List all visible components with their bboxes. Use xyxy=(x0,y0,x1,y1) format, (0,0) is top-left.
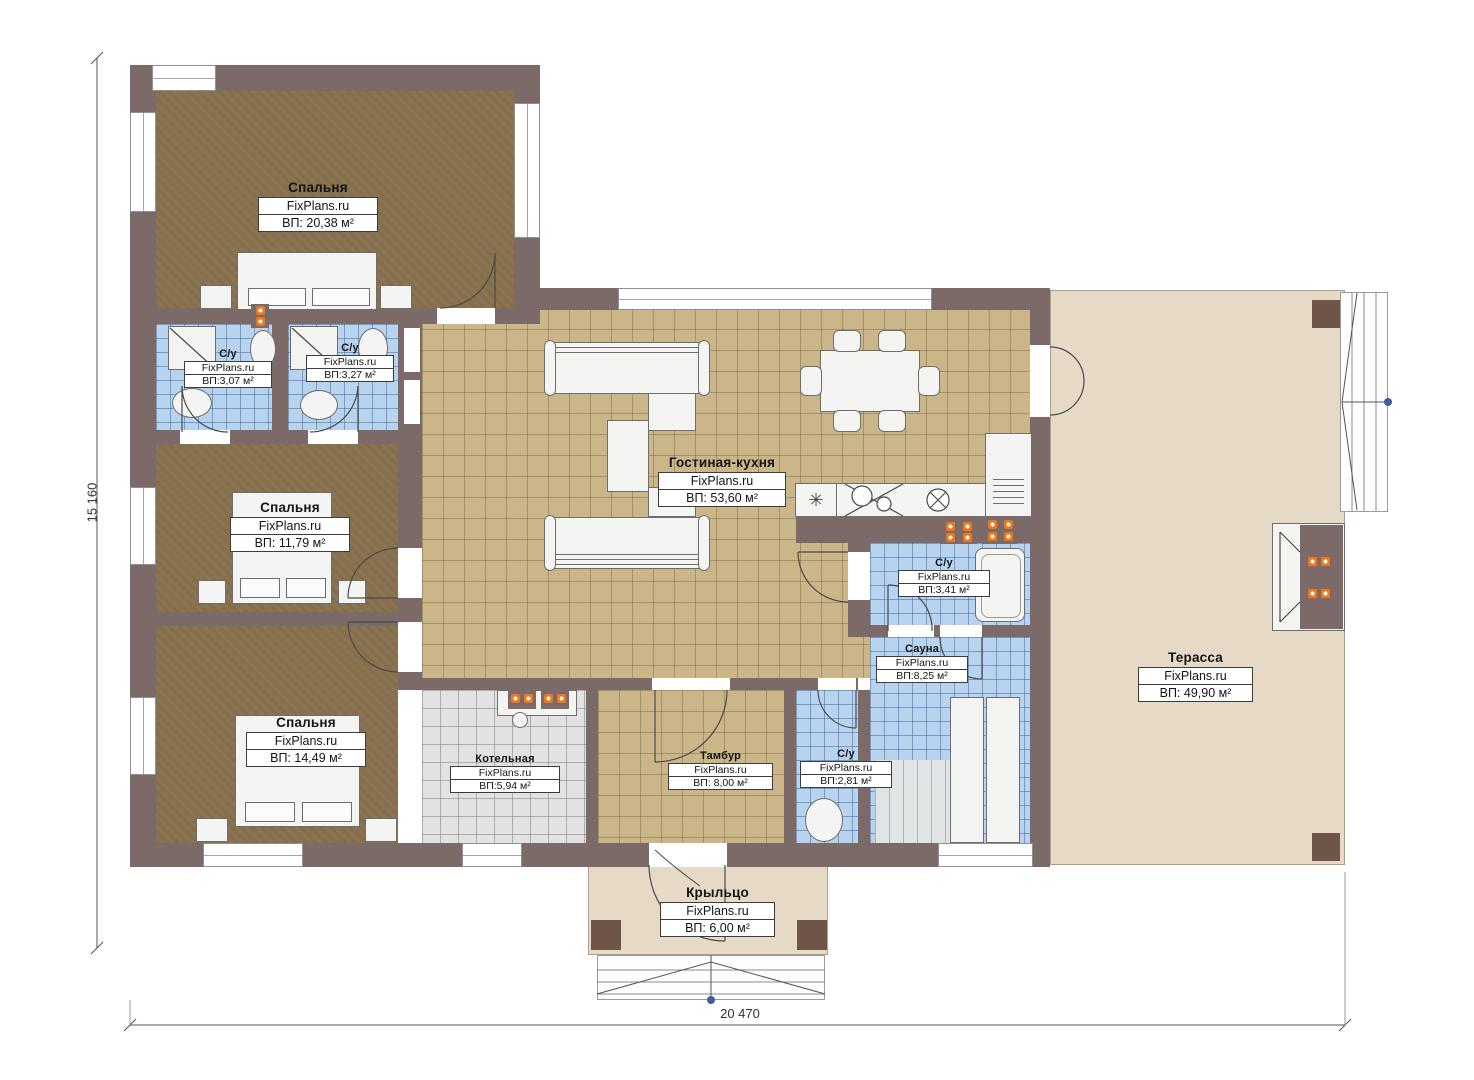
window xyxy=(203,843,303,867)
window xyxy=(130,487,156,565)
brand: FixPlans.ru xyxy=(247,733,365,749)
brand: FixPlans.ru xyxy=(659,473,785,489)
room-name: С/у xyxy=(184,348,272,360)
toilet xyxy=(805,798,843,842)
chair xyxy=(833,410,861,432)
floor-plan: ✳ xyxy=(0,0,1474,1080)
dimension-label-height: 15 160 xyxy=(85,473,100,533)
window xyxy=(152,65,216,91)
fridge xyxy=(985,433,1032,517)
nightstand xyxy=(198,580,226,604)
wall xyxy=(422,678,802,690)
door-opening xyxy=(398,548,422,598)
room-label-bath-3: С/у FixPlans.ru ВП:3,41 м² xyxy=(898,557,990,597)
room-label-bedroom-3: Спальня FixPlans.ru ВП: 14,49 м² xyxy=(246,715,366,767)
room-area: ВП: 14,49 м² xyxy=(247,749,365,766)
bbq-burners xyxy=(1305,584,1333,602)
sofa-chaise xyxy=(648,393,696,431)
window xyxy=(130,697,156,775)
brand: FixPlans.ru xyxy=(899,571,989,583)
room-label-bath-1: С/у FixPlans.ru ВП:3,07 м² xyxy=(184,348,272,388)
pillow xyxy=(245,802,295,822)
room-label-boiler: Котельная FixPlans.ru ВП:5,94 м² xyxy=(450,753,560,793)
room-name: Сауна xyxy=(876,643,968,655)
wall xyxy=(586,690,598,843)
pillow xyxy=(302,802,352,822)
sofa-arm xyxy=(544,515,556,571)
door-opening xyxy=(180,430,230,444)
door-opening-front xyxy=(649,843,727,867)
door-opening xyxy=(848,552,870,600)
room-name: Спальня xyxy=(230,500,350,515)
porch-post xyxy=(591,920,621,950)
room-area: ВП: 6,00 м² xyxy=(661,919,774,936)
room-label-bedroom-1: Спальня FixPlans.ru ВП: 20,38 м² xyxy=(258,180,378,232)
room-label-porch: Крыльцо FixPlans.ru ВП: 6,00 м² xyxy=(660,885,775,937)
radiator xyxy=(251,304,269,328)
room-label-bath-2: С/у FixPlans.ru ВП:3,27 м² xyxy=(306,342,394,382)
door-opening xyxy=(888,625,934,637)
pillow xyxy=(240,578,280,598)
room-name: С/у xyxy=(898,557,990,569)
nightstand xyxy=(200,285,232,309)
room-area: ВП:3,41 м² xyxy=(899,583,989,596)
window xyxy=(938,843,1033,867)
room-label-bath-4: С/у FixPlans.ru ВП:2,81 м² xyxy=(800,748,892,788)
brand: FixPlans.ru xyxy=(801,762,891,774)
room-area: ВП: 8,00 м² xyxy=(669,776,772,789)
window xyxy=(130,112,156,212)
sofa-arm xyxy=(544,340,556,396)
room-name: С/у xyxy=(800,748,892,760)
room-area: ВП:3,27 м² xyxy=(307,368,393,381)
room-label-living-kitchen: Гостиная-кухня FixPlans.ru ВП: 53,60 м² xyxy=(658,455,786,507)
porch-post xyxy=(797,920,827,950)
window xyxy=(618,288,932,310)
terrace-post xyxy=(1312,300,1340,328)
nightstand xyxy=(196,818,228,842)
wall xyxy=(784,690,796,843)
room-name: Гостиная-кухня xyxy=(658,455,786,470)
boiler-gauge xyxy=(512,712,528,728)
vent-symbol: ✳ xyxy=(808,490,823,511)
door-opening xyxy=(398,622,422,672)
nightstand xyxy=(365,818,397,842)
brand: FixPlans.ru xyxy=(259,198,377,214)
room-name: С/у xyxy=(306,342,394,354)
brand: FixPlans.ru xyxy=(451,767,559,779)
chair xyxy=(833,330,861,352)
coffee-table xyxy=(607,420,649,492)
room-label-bedroom-2: Спальня FixPlans.ru ВП: 11,79 м² xyxy=(230,500,350,552)
brand: FixPlans.ru xyxy=(231,518,349,534)
sofa-arm xyxy=(698,340,710,396)
brand: FixPlans.ru xyxy=(877,657,967,669)
wall xyxy=(848,625,1030,637)
cooktop-vent-icon: ✳ xyxy=(795,483,837,517)
chair xyxy=(878,410,906,432)
window xyxy=(514,103,540,238)
room-area: ВП: 11,79 м² xyxy=(231,534,349,551)
radiator xyxy=(941,520,977,544)
dining-table xyxy=(820,350,920,412)
room-name: Тамбур xyxy=(668,750,773,762)
sofa-backrest xyxy=(552,342,702,357)
room-label-sauna: Сауна FixPlans.ru ВП:8,25 м² xyxy=(876,643,968,683)
sofa-arm xyxy=(698,515,710,571)
radiator xyxy=(983,517,1017,544)
room-label-vestibule: Тамбур FixPlans.ru ВП: 8,00 м² xyxy=(668,750,773,790)
room-area: ВП:2,81 м² xyxy=(801,774,891,787)
room-area: ВП:3,07 м² xyxy=(185,374,271,387)
boiler-burners xyxy=(508,687,536,709)
chair xyxy=(918,366,940,396)
door-opening-terrace xyxy=(1030,345,1050,417)
brand: FixPlans.ru xyxy=(1139,668,1252,684)
wall-niche xyxy=(404,328,420,372)
terrace-post xyxy=(1312,833,1340,861)
chair xyxy=(800,366,822,396)
room-area: ВП: 49,90 м² xyxy=(1139,684,1252,701)
bbq-burners xyxy=(1305,552,1333,570)
room-name: Крыльцо xyxy=(660,885,775,900)
brand: FixPlans.ru xyxy=(661,903,774,919)
room-name: Котельная xyxy=(450,753,560,765)
terrace-stairs xyxy=(1340,292,1388,512)
window xyxy=(462,843,522,867)
toilet xyxy=(300,390,338,420)
brand: FixPlans.ru xyxy=(185,362,271,374)
room-name: Спальня xyxy=(258,180,378,195)
sauna-bench xyxy=(986,697,1020,843)
room-name: Терасса xyxy=(1138,650,1253,665)
room-label-terrace: Терасса FixPlans.ru ВП: 49,90 м² xyxy=(1138,650,1253,702)
brand: FixPlans.ru xyxy=(669,764,772,776)
toilet xyxy=(172,388,212,418)
pillow xyxy=(312,288,370,306)
sofa-backrest xyxy=(552,554,702,569)
nightstand xyxy=(380,285,412,309)
door-opening xyxy=(437,308,495,324)
room-name: Спальня xyxy=(246,715,366,730)
fridge-vent-slats xyxy=(993,479,1025,508)
door-opening xyxy=(818,678,856,690)
sauna-bench xyxy=(950,697,984,843)
door-opening xyxy=(308,430,358,444)
wall xyxy=(156,612,398,626)
brand: FixPlans.ru xyxy=(307,356,393,368)
bbq-grill-body xyxy=(1300,525,1343,629)
pillow xyxy=(286,578,326,598)
room-area: ВП:8,25 м² xyxy=(877,669,967,682)
chair xyxy=(878,330,906,352)
room-area: ВП: 53,60 м² xyxy=(659,489,785,506)
room-area: ВП:5,94 м² xyxy=(451,779,559,792)
wall-niche xyxy=(404,380,420,424)
nightstand xyxy=(338,580,366,604)
porch-stairs xyxy=(597,955,825,1000)
door-opening xyxy=(652,678,730,690)
door-opening xyxy=(940,625,982,637)
dimension-label-width: 20 470 xyxy=(700,1006,780,1021)
boiler-burners xyxy=(541,687,569,709)
room-area: ВП: 20,38 м² xyxy=(259,214,377,231)
